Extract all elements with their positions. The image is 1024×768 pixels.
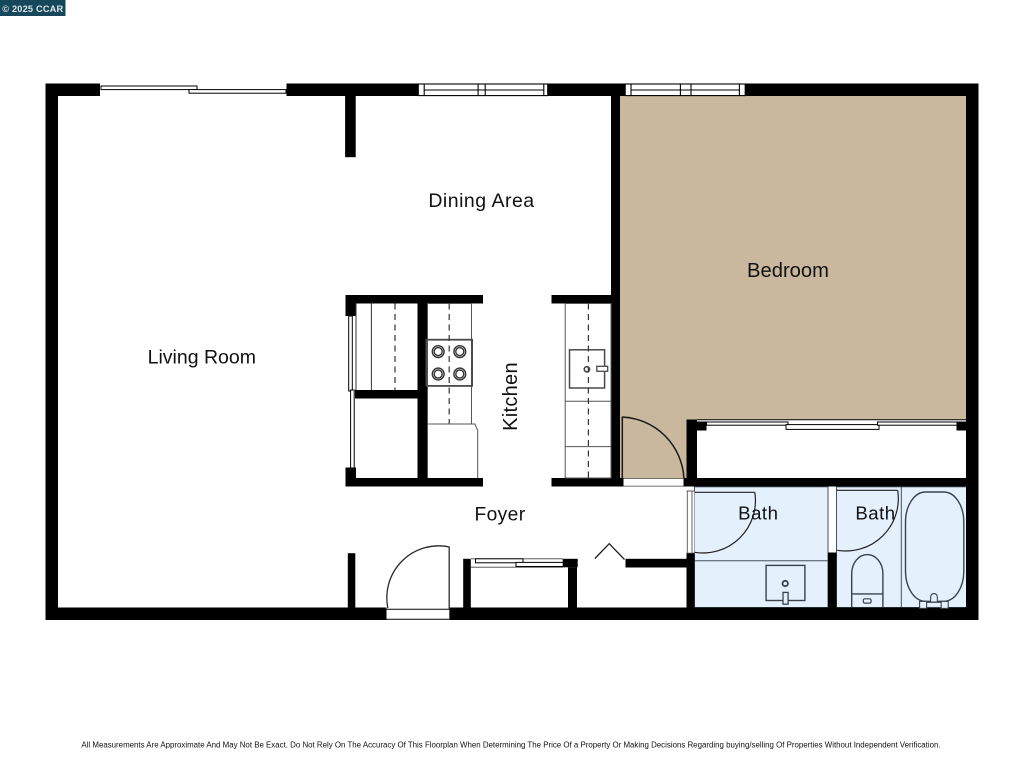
svg-text:Kitchen: Kitchen (500, 362, 522, 431)
svg-text:All Measurements Are Approxima: All Measurements Are Approximate And May… (81, 741, 940, 750)
svg-text:Foyer: Foyer (474, 505, 525, 526)
svg-text:Bath: Bath (855, 503, 895, 524)
svg-text:Bath: Bath (738, 503, 778, 524)
svg-text:© 2025 CCAR: © 2025 CCAR (2, 4, 63, 14)
svg-text:Bedroom: Bedroom (747, 260, 829, 282)
svg-text:Living Room: Living Room (148, 347, 256, 369)
svg-text:Dining Area: Dining Area (428, 190, 534, 212)
